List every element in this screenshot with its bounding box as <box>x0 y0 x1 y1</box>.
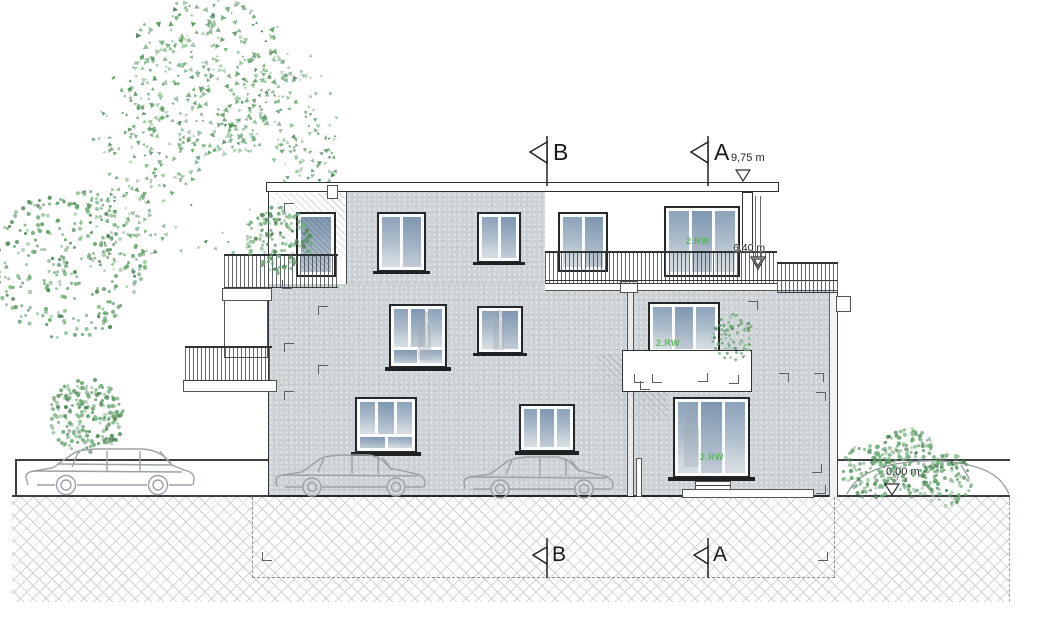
elevation-drawing: 2.RW 2.RW 2.RW 9,75 m 6,40 m 0,00 m <box>0 0 1042 619</box>
level-marker-roof <box>735 169 751 182</box>
section-letter-b-bottom: B <box>552 543 566 567</box>
section-marker-b-bottom <box>529 538 549 578</box>
section-letter-a-top: A <box>714 139 729 166</box>
section-letter-b-top: B <box>553 139 568 166</box>
dimension-label-ground: 0,00 m <box>886 466 920 478</box>
section-marker-b-top <box>527 136 551 186</box>
section-marker-a-bottom <box>690 538 710 578</box>
section-letter-a-bottom: A <box>713 543 727 567</box>
dimension-label-roof: 9,75 m <box>731 152 765 164</box>
level-marker-terrace <box>750 256 766 270</box>
bushes-layer <box>0 0 1042 619</box>
level-marker-ground <box>884 483 900 496</box>
dimension-label-terrace: 6,40 m <box>733 242 765 254</box>
section-marker-a-top <box>688 136 712 186</box>
